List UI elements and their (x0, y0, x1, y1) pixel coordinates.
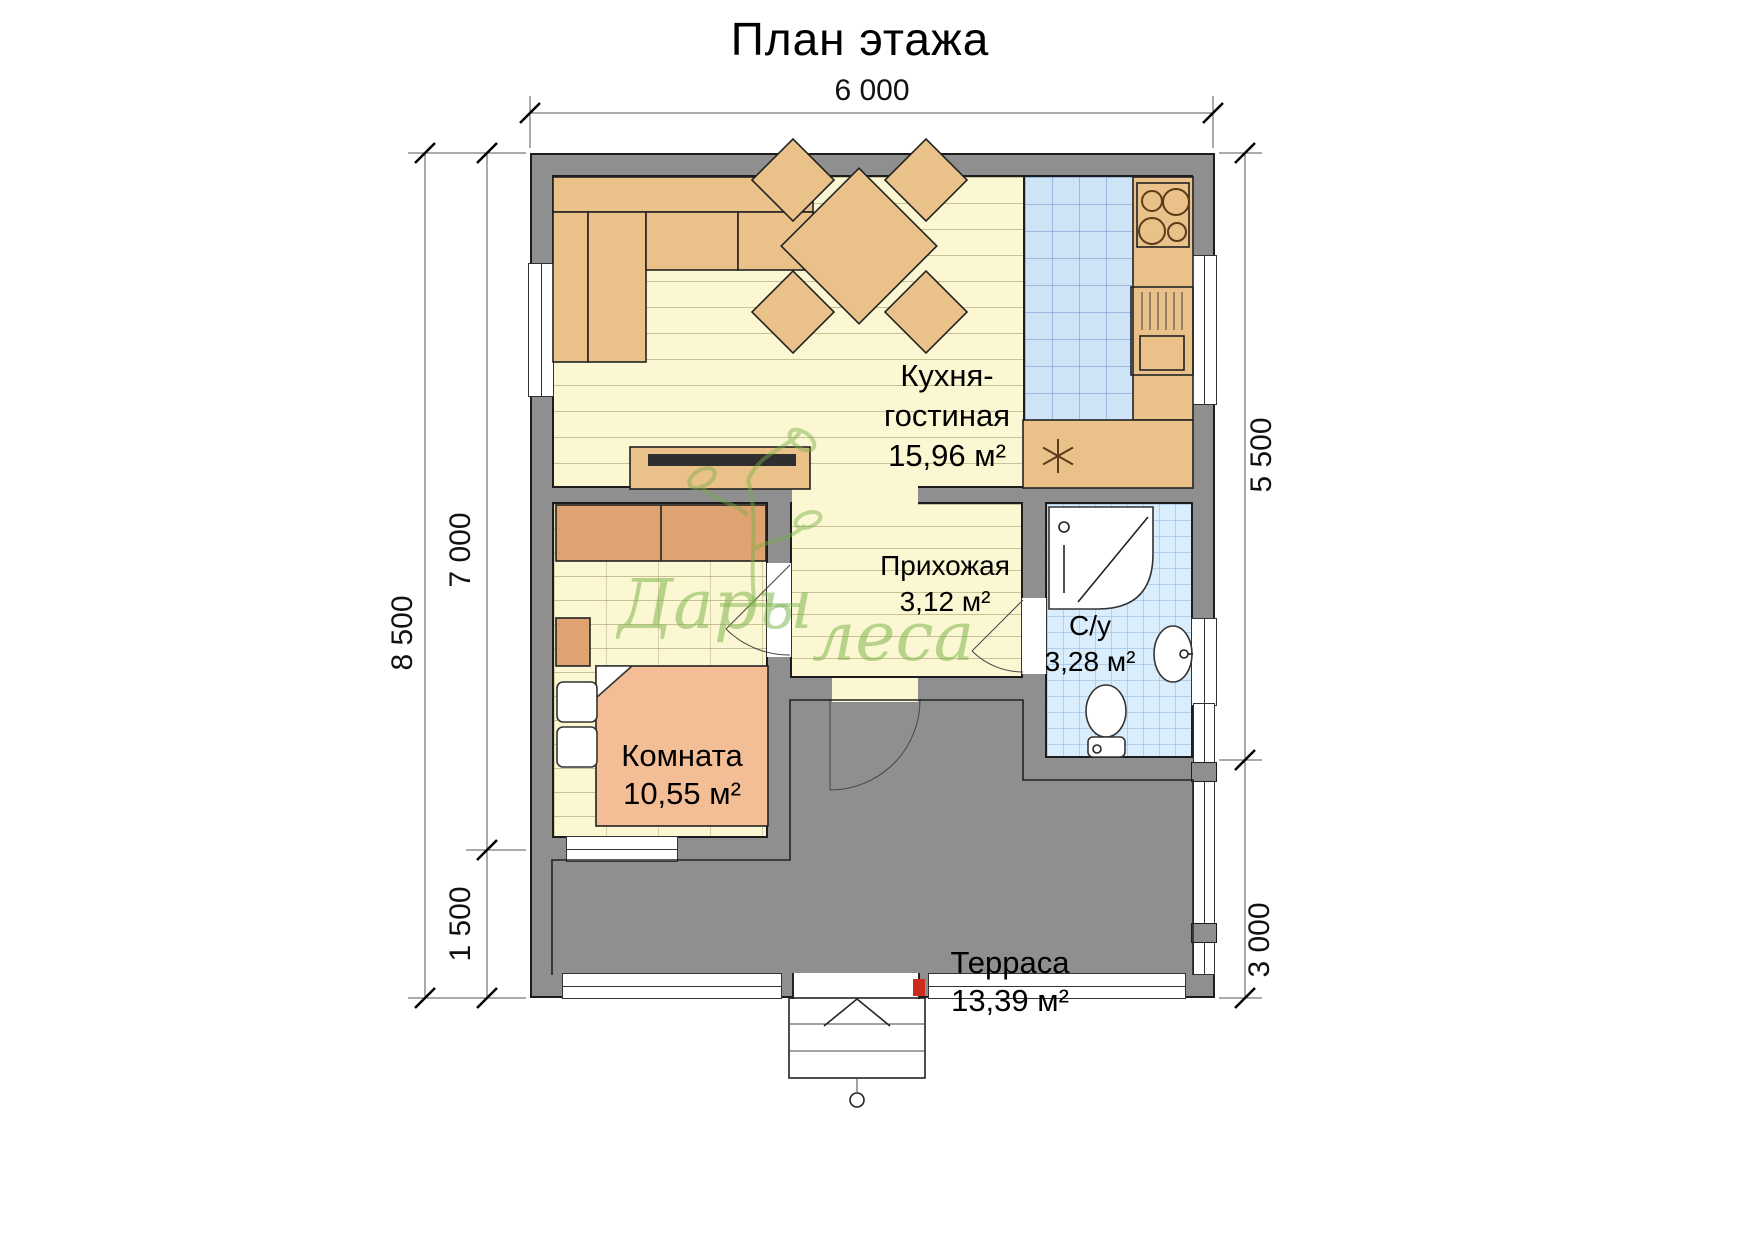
window-bathroom-right (1191, 618, 1217, 706)
living-hallway-opening (792, 486, 918, 506)
window-living-left (528, 263, 554, 397)
dimension-top: 6 000 (792, 74, 952, 108)
dimension-left-inner: 7 000 (444, 470, 478, 630)
dimension-left-outer: 8 500 (386, 553, 420, 713)
room-name: Терраса (860, 944, 1160, 982)
room-name: Комната (532, 737, 832, 775)
room-label-bedroom: Комната 10,55 м² (532, 737, 832, 813)
page-title: План этажа (520, 12, 1200, 66)
hallway-terrace-door-opening (832, 678, 918, 702)
room-area: 3,28 м² (990, 644, 1190, 680)
room-label-terrace: Терраса 13,39 м² (860, 944, 1160, 1020)
window-terrace-left (562, 973, 782, 999)
dimension-right-lower: 3 000 (1243, 860, 1277, 1020)
room-area: 15,96 м² (797, 436, 1097, 476)
watermark-text: Дары (618, 566, 813, 645)
window-kitchen-right (1191, 255, 1217, 405)
room-name: С/у (990, 608, 1190, 644)
floor-plan-canvas: План этажа (0, 0, 1744, 1240)
room-area: 10,55 м² (532, 775, 832, 813)
room-name: Кухня- (797, 356, 1097, 396)
railing-post (1191, 762, 1217, 782)
room-label-kitchen-living: Кухня- гостиная 15,96 м² (797, 356, 1097, 476)
room-name: гостиная (797, 396, 1097, 436)
railing-post (1191, 923, 1217, 943)
room-label-bathroom: С/у 3,28 м² (990, 608, 1190, 680)
room-name: Прихожая (815, 548, 1075, 584)
dimension-left-terrace: 1 500 (444, 844, 478, 1004)
dimension-right-upper: 5 500 (1245, 375, 1279, 535)
window-bedroom-bottom (566, 836, 678, 862)
room-area: 13,39 м² (860, 982, 1160, 1020)
